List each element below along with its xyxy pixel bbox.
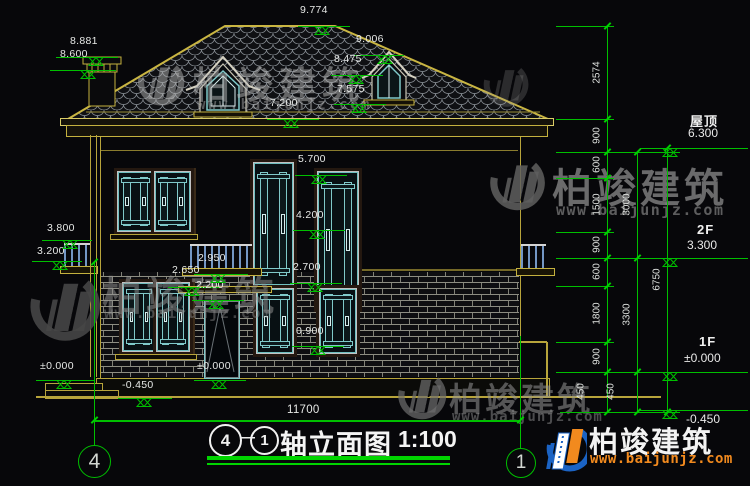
right-balcony-slab bbox=[516, 268, 555, 276]
axis-bubble-right: 1 bbox=[506, 448, 536, 478]
dim-chain-line bbox=[607, 26, 608, 412]
dim-chain-label: 450 bbox=[576, 370, 587, 414]
eave-band-lower bbox=[66, 125, 548, 137]
level-marker-symbol bbox=[62, 236, 78, 245]
width-dimension-line bbox=[94, 420, 521, 422]
window-2f-left-panel bbox=[118, 172, 153, 231]
level-marker-symbol bbox=[311, 171, 327, 180]
elevation-marker-text: 9.774 bbox=[300, 5, 328, 16]
title-underline bbox=[207, 456, 450, 460]
brand-logo-icon bbox=[477, 60, 531, 114]
watermark-url: www.baijunjz.com bbox=[556, 201, 725, 219]
elevation-marker-text: 5.700 bbox=[298, 154, 326, 165]
elevation-marker-text: 3.800 bbox=[47, 223, 75, 234]
level-marker-symbol bbox=[348, 71, 364, 80]
right-balcony-railing bbox=[521, 244, 546, 271]
window-2f-left-panel bbox=[155, 172, 190, 231]
title-axis-bubble-right: 1 bbox=[250, 426, 279, 455]
dim-chain-label: 1500 bbox=[592, 183, 603, 227]
watermark-url: www.baijunjz.com bbox=[104, 304, 273, 322]
stair-window-upper-right bbox=[318, 172, 358, 308]
elevation-marker-text: ±0.000 bbox=[40, 361, 74, 372]
brand-logo-icon bbox=[391, 369, 449, 427]
level-marker-symbol bbox=[314, 22, 330, 31]
level-marker-symbol bbox=[211, 376, 227, 385]
floor-elevation: 6.300 bbox=[688, 126, 718, 140]
level-marker-symbol bbox=[662, 406, 678, 415]
dim-chain-label: 450 bbox=[606, 370, 617, 414]
elevation-marker-text: 4.200 bbox=[296, 210, 324, 221]
window-sill bbox=[115, 354, 197, 360]
level-marker-symbol bbox=[210, 270, 226, 279]
elevation-marker-text: 2.950 bbox=[198, 253, 226, 264]
brand-logo-icon bbox=[131, 57, 187, 113]
elevation-marker-text: 2.650 bbox=[172, 265, 200, 276]
elevation-marker-text: 0.900 bbox=[296, 326, 324, 337]
dim-chain-label: 2574 bbox=[592, 50, 603, 94]
dim-chain-label: 3300 bbox=[622, 293, 633, 337]
floor-elevation: 3.300 bbox=[687, 238, 717, 252]
floor-elevation: ±0.000 bbox=[684, 351, 721, 365]
elevation-marker-text: 8.600 bbox=[60, 49, 88, 60]
axis-bubble-left: 4 bbox=[78, 445, 111, 478]
level-marker-symbol bbox=[52, 257, 68, 266]
title-underline bbox=[207, 463, 450, 465]
elevation-marker-text: 7.200 bbox=[270, 98, 298, 109]
elevation-marker-text: 8.881 bbox=[70, 36, 98, 47]
level-marker-symbol bbox=[184, 283, 200, 292]
floor-level-line bbox=[640, 372, 748, 373]
elevation-marker-text: 2.700 bbox=[293, 262, 321, 273]
level-marker-symbol bbox=[309, 226, 325, 235]
level-marker-symbol bbox=[662, 368, 678, 377]
level-marker-symbol bbox=[377, 51, 393, 60]
frieze-line bbox=[101, 150, 518, 151]
dim-chain-label: 600 bbox=[592, 143, 603, 187]
elevation-marker-text: 8.475 bbox=[334, 54, 362, 65]
level-marker-symbol bbox=[80, 66, 96, 75]
axis-line-1 bbox=[520, 336, 521, 449]
dim-chain-label: 3000 bbox=[622, 183, 633, 227]
level-marker-symbol bbox=[662, 254, 678, 263]
level-marker-symbol bbox=[88, 53, 104, 62]
elevation-marker-text: 3.200 bbox=[37, 246, 65, 257]
level-marker-symbol bbox=[662, 144, 678, 153]
elevation-marker-text: 7.575 bbox=[337, 84, 365, 95]
level-marker-symbol bbox=[310, 342, 326, 351]
dim-chain-label: 900 bbox=[592, 335, 603, 379]
level-marker-symbol bbox=[283, 115, 299, 124]
floor-name: 2F bbox=[697, 222, 714, 237]
porch-slab-line bbox=[519, 341, 547, 343]
brand-logo-color-icon bbox=[541, 419, 587, 483]
brand-url: www.baijunjz.com bbox=[590, 451, 733, 467]
elevation-drawing-canvas: 柏竣建筑 www.baijunjz.com 柏竣建筑 www.baijunjz.… bbox=[0, 0, 750, 486]
level-marker-symbol bbox=[208, 296, 224, 305]
elevation-marker-text: 9.006 bbox=[356, 34, 384, 45]
level-marker-symbol bbox=[136, 394, 152, 403]
brand-logo-icon bbox=[20, 268, 104, 352]
width-dimension-text: 11700 bbox=[287, 405, 320, 416]
dim-chain-label: 600 bbox=[592, 250, 603, 294]
floor-name: 1F bbox=[699, 334, 716, 349]
elevation-marker-text: ±0.000 bbox=[197, 361, 231, 372]
brand-logo-icon bbox=[482, 153, 548, 219]
title-scale: 1:100 bbox=[398, 426, 457, 453]
level-marker-symbol bbox=[56, 376, 72, 385]
dim-chain-label: 6750 bbox=[652, 258, 663, 302]
level-marker-symbol bbox=[351, 100, 367, 109]
floor-level-line bbox=[640, 148, 748, 149]
title-axis-bubble-left: 4 bbox=[209, 424, 242, 457]
elevation-marker-text: -0.450 bbox=[122, 380, 154, 391]
floor-level-line bbox=[640, 410, 748, 411]
level-marker-symbol bbox=[307, 279, 323, 288]
dim-chain-label: 1800 bbox=[592, 292, 603, 336]
window-sill bbox=[110, 234, 198, 240]
